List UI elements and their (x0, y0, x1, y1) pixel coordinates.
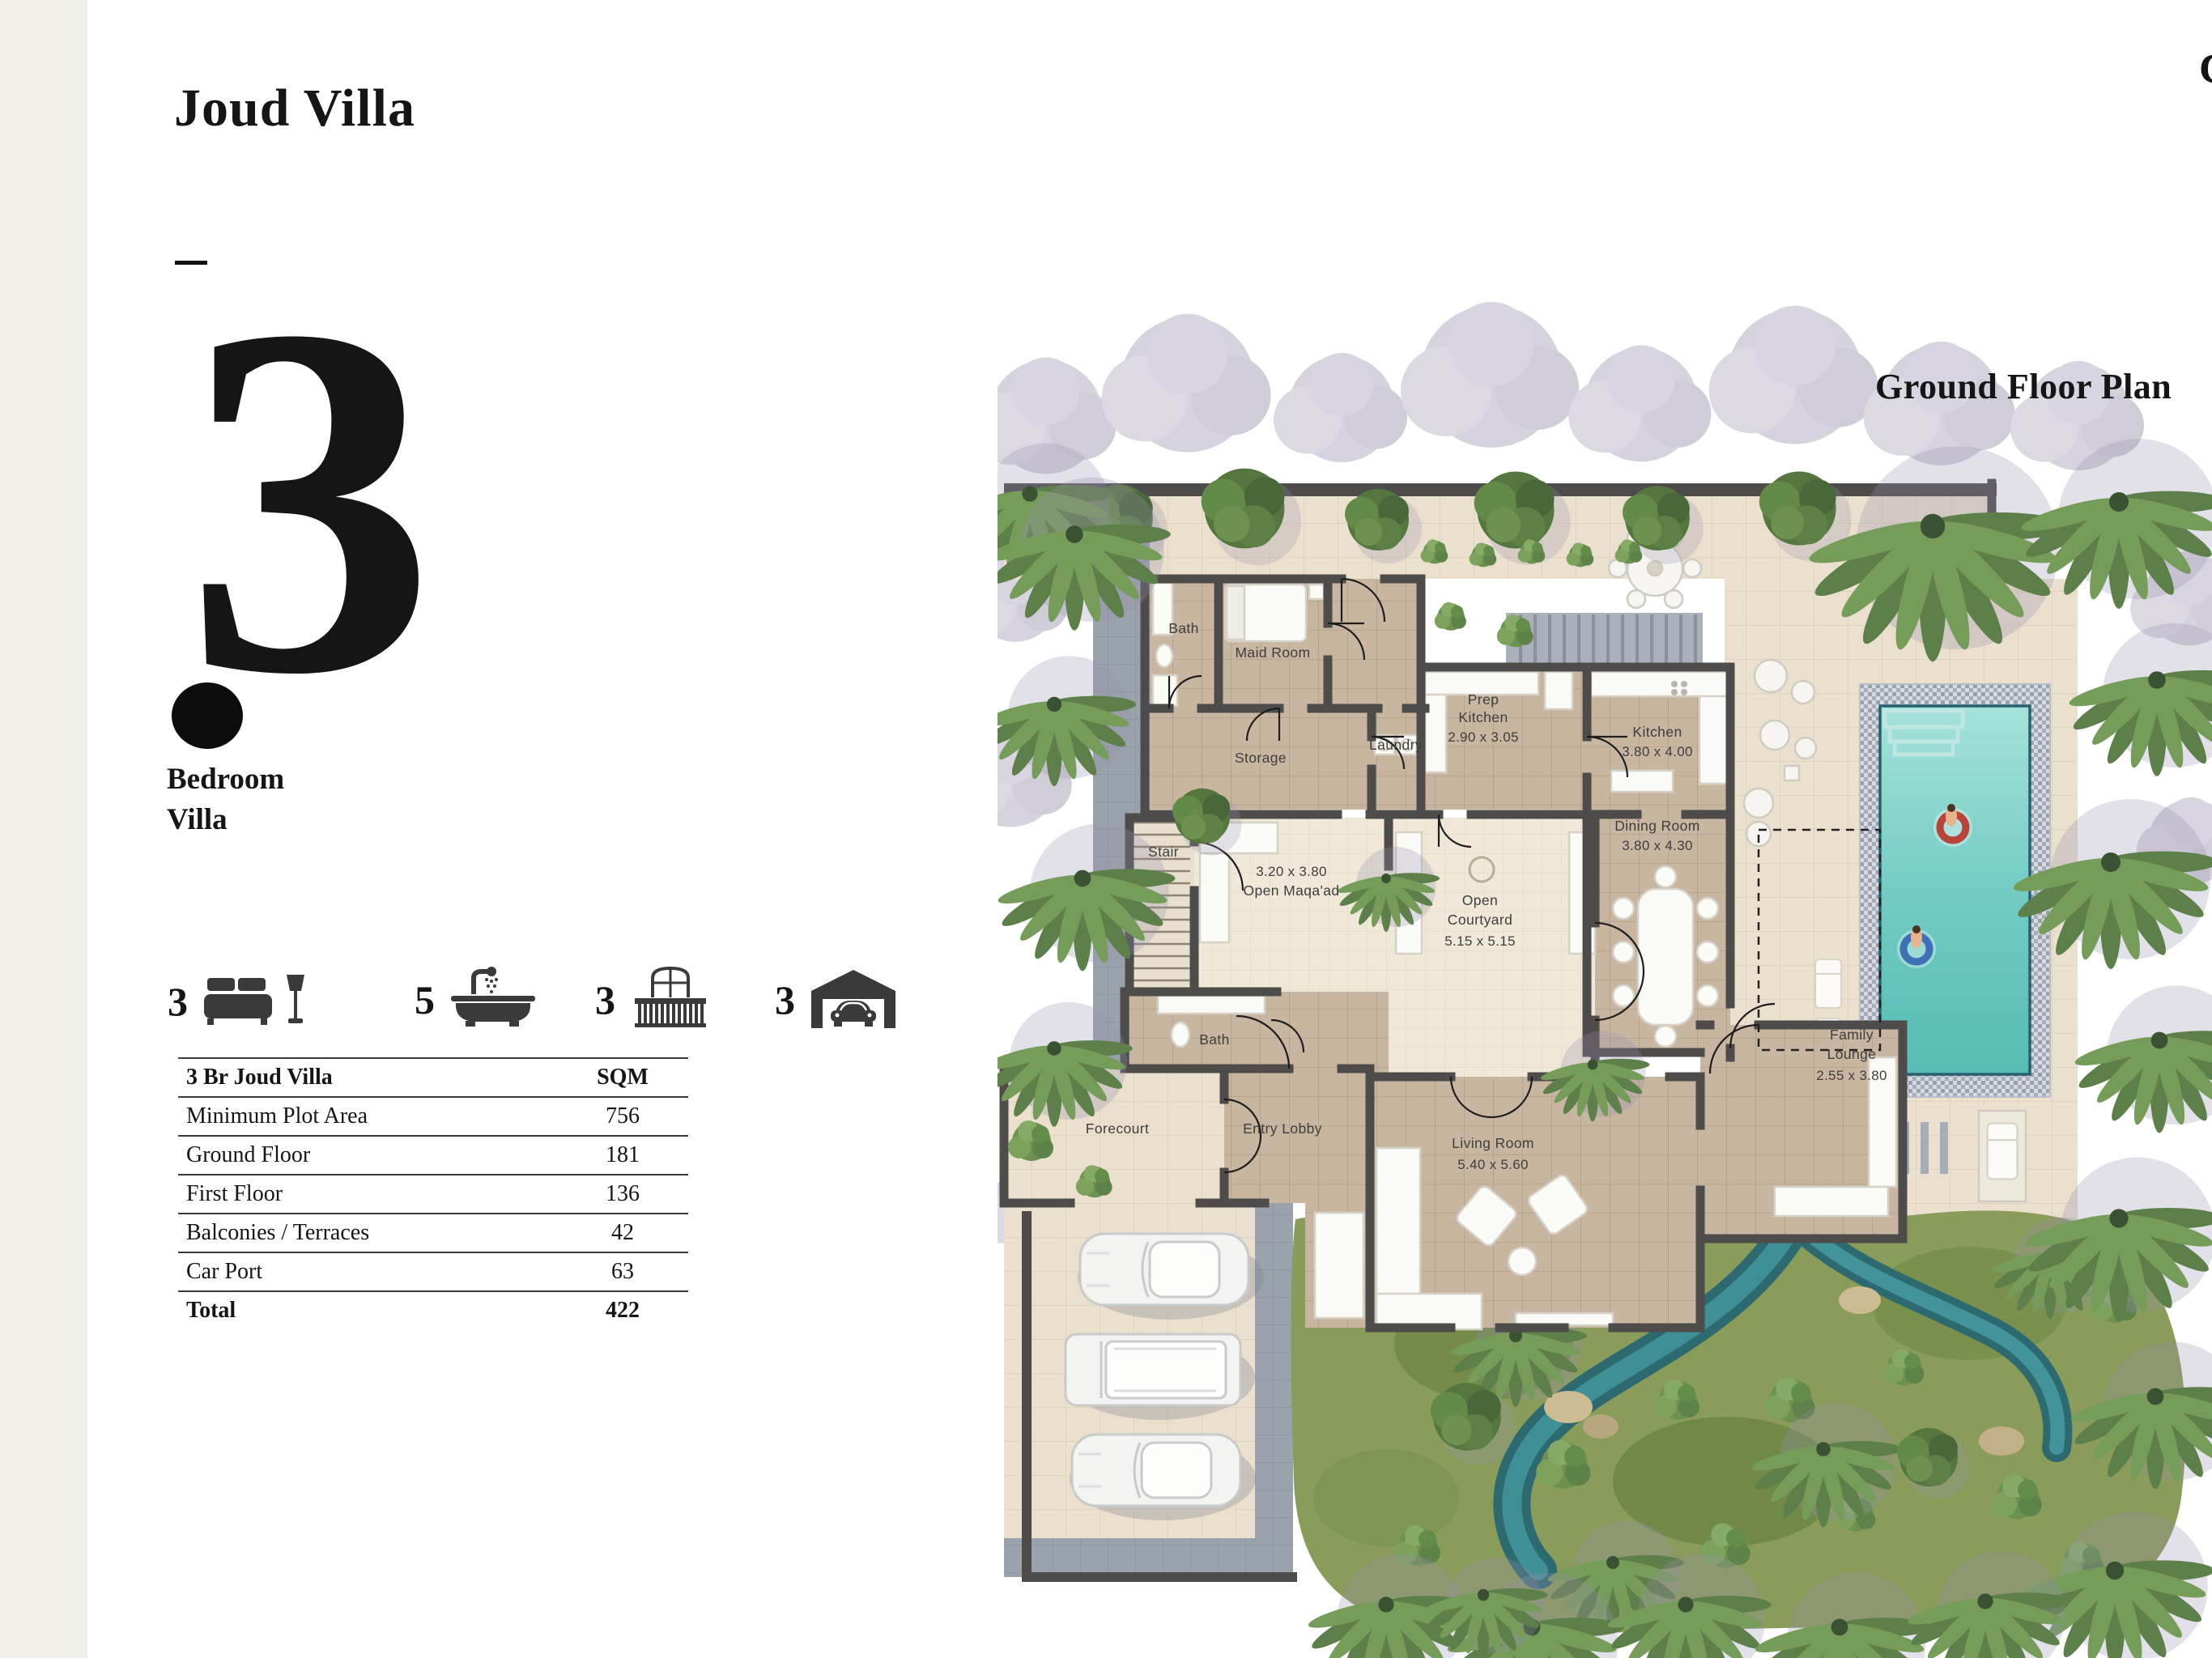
room-kitchen-label: Kitchen (1632, 724, 1682, 740)
row-label: Minimum Plot Area (178, 1097, 554, 1136)
table-header-row: 3 Br Joud Villa SQM (178, 1058, 688, 1097)
row-value: 181 (554, 1136, 688, 1175)
room-living-dims: 5.40 x 5.60 (1457, 1157, 1528, 1172)
car (1070, 1435, 1256, 1520)
room-bath1-label: Bath (1168, 620, 1199, 636)
villa-line: Villa (167, 800, 284, 840)
table-header-unit: SQM (554, 1058, 688, 1097)
total-label: Total (178, 1291, 554, 1329)
numeral-dot-ornament (172, 682, 243, 749)
row-label: First Floor (178, 1175, 554, 1214)
carport-cars (1064, 1234, 1264, 1520)
car (1078, 1234, 1264, 1320)
room-prep-kitchen-label-2: Kitchen (1458, 709, 1508, 725)
room-kitchen-dims: 3.80 x 4.00 (1622, 744, 1692, 759)
bedrooms-count: 3 (168, 973, 188, 1030)
row-value: 756 (554, 1097, 688, 1136)
area-table: 3 Br Joud Villa SQM Minimum Plot Area756… (178, 1057, 688, 1329)
room-courtyard-dims: 5.15 x 5.15 (1444, 933, 1515, 949)
plan-title: Ground Floor Plan (1875, 366, 2172, 407)
bedroom-count-numeral: 3 (185, 257, 436, 743)
bathrooms-count: 5 (415, 971, 435, 1028)
table-row: Balconies / Terraces42 (178, 1214, 688, 1252)
bedroom-line: Bedroom (167, 759, 284, 800)
left-margin-strip (0, 0, 87, 1658)
table-row-total: Total422 (178, 1291, 688, 1329)
room-maqaad-dims: 3.20 x 3.80 (1256, 864, 1326, 879)
room-family-lounge-dims: 2.55 x 3.80 (1816, 1068, 1887, 1083)
room-storage-label: Storage (1235, 750, 1287, 766)
room-family-lounge-label-1: Family (1830, 1027, 1874, 1043)
car-ports-count: 3 (775, 971, 795, 1028)
room-maqaad-label: Open Maqa'ad (1243, 882, 1339, 899)
table-row: Ground Floor181 (178, 1136, 688, 1175)
room-stair-label: Stair (1148, 844, 1179, 860)
room-laundry-label: Laundry (1369, 737, 1423, 753)
row-label: Ground Floor (178, 1136, 554, 1175)
table-row: Car Port63 (178, 1252, 688, 1291)
room-entry-lobby-label: Entry Lobby (1243, 1120, 1322, 1137)
room-courtyard-label-1: Open (1462, 892, 1498, 908)
bath-icon (448, 965, 538, 1028)
total-value: 422 (554, 1291, 688, 1329)
bedroom-villa-label: Bedroom Villa (167, 759, 284, 840)
corner-letter: C (2199, 45, 2212, 93)
bed-icon (201, 970, 322, 1030)
room-family-lounge-label-2: Lounge (1827, 1046, 1877, 1062)
floor-plan: Bath Maid Room Storage Laundry Prep Kitc… (998, 251, 2212, 1658)
room-courtyard-label-2: Courtyard (1448, 912, 1512, 928)
feature-bathrooms: 5 (415, 963, 538, 1028)
carport-icon (808, 965, 899, 1028)
table-header-name: 3 Br Joud Villa (178, 1058, 554, 1097)
row-value: 42 (554, 1214, 688, 1252)
car (1064, 1334, 1255, 1420)
table-row: Minimum Plot Area756 (178, 1097, 688, 1136)
feature-bedrooms: 3 (168, 965, 322, 1030)
row-value: 63 (554, 1252, 688, 1291)
room-dining-label: Dining Room (1614, 818, 1700, 834)
table-row: First Floor136 (178, 1175, 688, 1214)
room-prep-kitchen-dims: 2.90 x 3.05 (1448, 729, 1518, 745)
feature-balconies: 3 (595, 963, 713, 1028)
brochure-page: Joud Villa 3 Bedroom Villa 3 5 3 (0, 0, 2212, 1658)
room-forecourt-label: Forecourt (1086, 1120, 1150, 1137)
room-prep-kitchen-label-1: Prep (1468, 691, 1499, 708)
room-maid-label: Maid Room (1235, 644, 1310, 661)
feature-car-ports: 3 (775, 963, 899, 1028)
balconies-count: 3 (595, 971, 615, 1028)
room-living-label: Living Room (1452, 1135, 1534, 1151)
row-label: Balconies / Terraces (178, 1214, 554, 1252)
balcony-icon (628, 965, 713, 1028)
room-dining-dims: 3.80 x 4.30 (1622, 838, 1692, 853)
row-value: 136 (554, 1175, 688, 1214)
row-label: Car Port (178, 1252, 554, 1291)
room-bath2-label: Bath (1199, 1031, 1230, 1048)
page-title: Joud Villa (174, 78, 415, 139)
